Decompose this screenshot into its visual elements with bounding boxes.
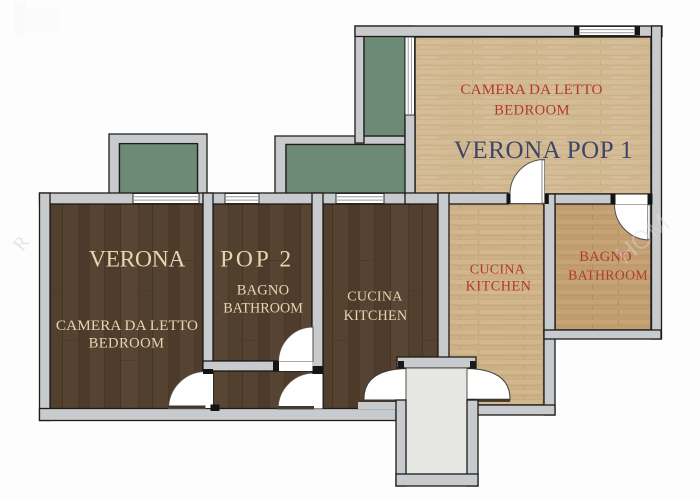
svg-text:BAGNO: BAGNO: [237, 283, 290, 299]
svg-text:BATHROOM: BATHROOM: [223, 300, 303, 316]
svg-text:KITCHEN: KITCHEN: [344, 308, 408, 324]
svg-text:POP 2: POP 2: [220, 246, 294, 272]
svg-text:BATHROOM: BATHROOM: [568, 268, 648, 283]
svg-text:BEDROOM: BEDROOM: [494, 103, 570, 119]
svg-text:CUCINA: CUCINA: [470, 263, 526, 278]
svg-text:CUCINA: CUCINA: [347, 290, 403, 305]
svg-text:R: R: [9, 232, 34, 255]
svg-text:BEDROOM: BEDROOM: [89, 336, 165, 352]
svg-text:VERONA POP 1: VERONA POP 1: [454, 137, 633, 164]
svg-text:VERONA: VERONA: [89, 246, 185, 272]
svg-text:CAMERA DA LETTO: CAMERA DA LETTO: [460, 81, 602, 98]
svg-text:KITCHEN: KITCHEN: [466, 279, 532, 295]
svg-text:CAMERA DA LETTO: CAMERA DA LETTO: [56, 317, 198, 334]
